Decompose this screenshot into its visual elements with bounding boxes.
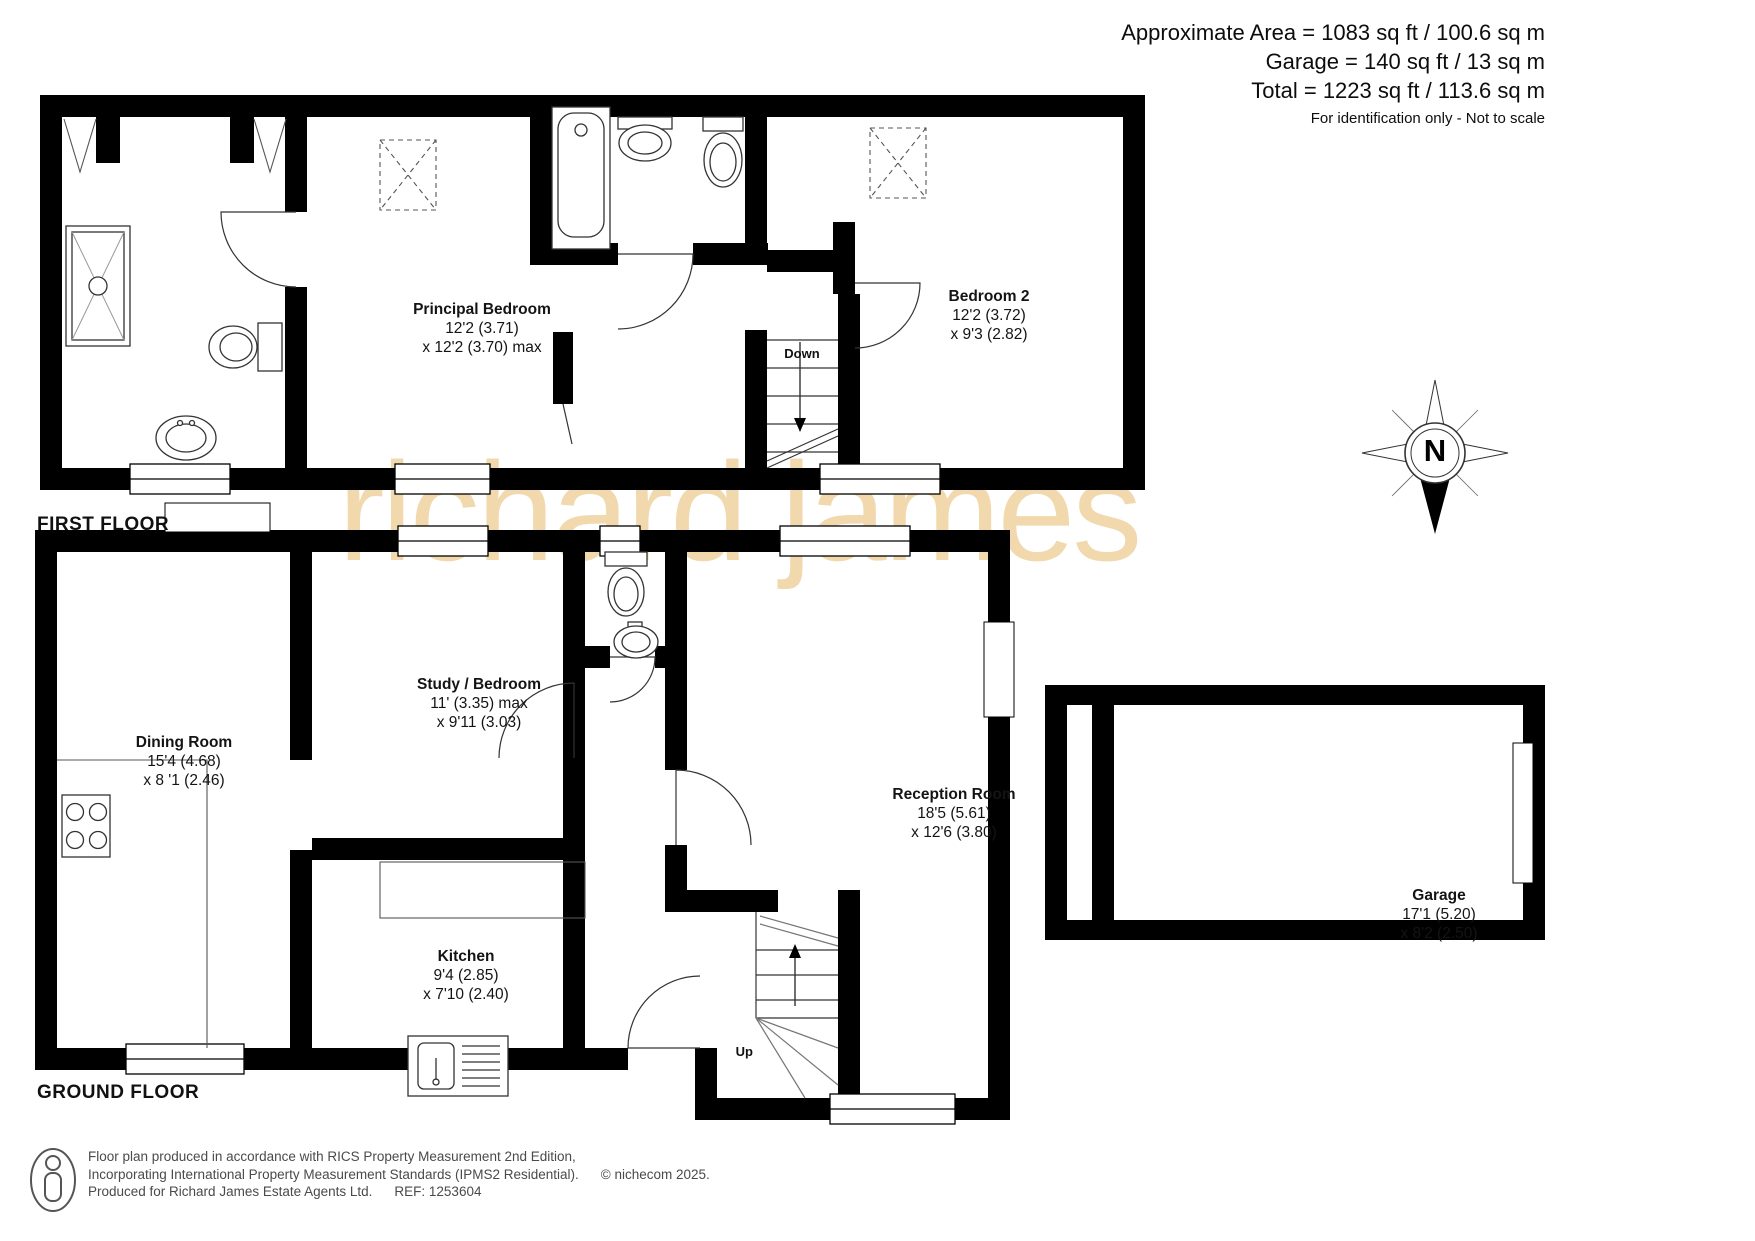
door-arc xyxy=(676,770,751,845)
window xyxy=(130,464,230,494)
room-dim: x 7'10 (2.40) xyxy=(356,985,576,1004)
reference-number: REF: 1253604 xyxy=(394,1184,481,1199)
copyright-text: © nichecom 2025. xyxy=(601,1167,710,1182)
room-label-garage: Garage 17'1 (5.20) x 8'2 (2.50) xyxy=(1329,886,1549,943)
room-name: Principal Bedroom xyxy=(372,300,592,319)
door-arc xyxy=(221,212,296,287)
door-arc xyxy=(628,976,700,1048)
chimney-recess xyxy=(984,622,1014,717)
window xyxy=(398,526,488,556)
room-dim: x 8'2 (2.50) xyxy=(1329,924,1549,943)
hanging-rail xyxy=(64,119,96,172)
room-dim: x 8 '1 (2.46) xyxy=(74,771,294,790)
room-dim: 12'2 (3.72) xyxy=(879,306,1099,325)
windows xyxy=(126,464,1533,1124)
room-dim: 18'5 (5.61) xyxy=(844,804,1064,823)
window xyxy=(395,464,490,494)
total-area: Total = 1223 sq ft / 113.6 sq m xyxy=(1121,76,1545,105)
garage-area: Garage = 140 sq ft / 13 sq m xyxy=(1121,47,1545,76)
room-dim: 17'1 (5.20) xyxy=(1329,905,1549,924)
room-name: Reception Room xyxy=(844,785,1064,804)
window xyxy=(780,526,910,556)
toilet-fixture xyxy=(703,117,743,187)
hanging-rail xyxy=(254,119,286,172)
approximate-area: Approximate Area = 1083 sq ft / 100.6 sq… xyxy=(1121,18,1545,47)
room-label-study-bedroom: Study / Bedroom 11' (3.35) max x 9'11 (3… xyxy=(369,675,589,732)
basin-fixture xyxy=(156,416,216,460)
produced-for-text: Produced for Richard James Estate Agents… xyxy=(88,1184,372,1199)
kitchen-counter xyxy=(380,862,585,918)
toilet-fixture xyxy=(605,552,647,616)
room-dim: x 9'11 (3.03) xyxy=(369,713,589,732)
room-label-principal-bedroom: Principal Bedroom 12'2 (3.71) x 12'2 (3.… xyxy=(372,300,592,357)
door-leaf xyxy=(563,404,572,444)
first-floor-title: FIRST FLOOR xyxy=(37,514,169,536)
basin-fixture xyxy=(614,622,658,658)
sink-fixture xyxy=(408,1036,508,1096)
basin-fixture xyxy=(618,117,672,161)
walls xyxy=(35,95,1545,1120)
stairs-down-label: Down xyxy=(772,346,832,361)
room-name: Garage xyxy=(1329,886,1549,905)
room-dim: 12'2 (3.71) xyxy=(372,319,592,338)
disclaimer-line-1: Floor plan produced in accordance with R… xyxy=(88,1148,710,1166)
room-dim: x 9'3 (2.82) xyxy=(879,325,1099,344)
floorplan-canvas: richard james xyxy=(0,0,1755,1241)
room-label-dining-room: Dining Room 15'4 (4.68) x 8 '1 (2.46) xyxy=(74,733,294,790)
disclaimer: Floor plan produced in accordance with R… xyxy=(88,1148,710,1201)
door-arc xyxy=(618,254,693,329)
room-label-reception-room: Reception Room 18'5 (5.61) x 12'6 (3.80) xyxy=(844,785,1064,842)
room-dim: 9'4 (2.85) xyxy=(356,966,576,985)
door-arc xyxy=(610,657,655,702)
wardrobe-dashed xyxy=(870,128,926,198)
wardrobe-dashed xyxy=(380,140,436,210)
nichecom-logo xyxy=(28,1146,80,1216)
disclaimer-standards: Incorporating International Property Mea… xyxy=(88,1167,579,1182)
floorplan-drawing xyxy=(0,0,1755,1241)
area-summary: Approximate Area = 1083 sq ft / 100.6 sq… xyxy=(1121,18,1545,129)
compass-north-label: N xyxy=(1414,433,1456,469)
disclaimer-line-2: Incorporating International Property Mea… xyxy=(88,1166,710,1184)
room-name: Bedroom 2 xyxy=(879,287,1099,306)
identification-note: For identification only - Not to scale xyxy=(1121,109,1545,129)
room-label-kitchen: Kitchen 9'4 (2.85) x 7'10 (2.40) xyxy=(356,947,576,1004)
room-label-bedroom-2: Bedroom 2 12'2 (3.72) x 9'3 (2.82) xyxy=(879,287,1099,344)
room-dim: 11' (3.35) max xyxy=(369,694,589,713)
window xyxy=(820,464,940,494)
room-dim: x 12'2 (3.70) max xyxy=(372,338,592,357)
room-name: Dining Room xyxy=(74,733,294,752)
ground-floor-title: GROUND FLOOR xyxy=(37,1082,199,1104)
room-name: Kitchen xyxy=(356,947,576,966)
bath-fixture xyxy=(552,107,610,249)
room-dim: 15'4 (4.68) xyxy=(74,752,294,771)
stairs-ground-floor xyxy=(756,912,838,1098)
shower-fixture xyxy=(66,226,130,346)
porch-step xyxy=(165,503,270,532)
toilet-fixture xyxy=(209,323,282,371)
window xyxy=(830,1094,955,1124)
window xyxy=(126,1044,244,1074)
stairs-up-label: Up xyxy=(693,1044,753,1059)
room-dim: x 12'6 (3.80) xyxy=(844,823,1064,842)
disclaimer-line-3: Produced for Richard James Estate Agents… xyxy=(88,1183,710,1201)
garage-door xyxy=(1513,743,1533,883)
hob-fixture xyxy=(62,795,110,857)
room-name: Study / Bedroom xyxy=(369,675,589,694)
